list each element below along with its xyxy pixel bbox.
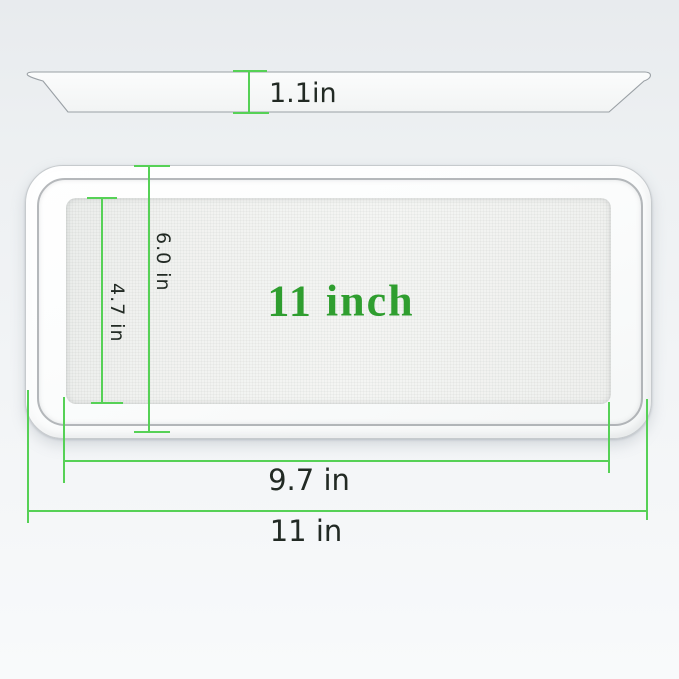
dim-outer-height-cap-bottom bbox=[134, 431, 170, 433]
dim-outer-width-ext-right bbox=[646, 399, 648, 520]
dim-depth-label: 1.1in bbox=[269, 80, 337, 107]
dim-inner-width-label: 9.7 in bbox=[268, 466, 350, 495]
dim-outer-height-label: 6.0 in bbox=[153, 232, 172, 292]
dim-depth-cap-top bbox=[233, 70, 267, 72]
tray-side-outline bbox=[27, 72, 650, 112]
dim-inner-height-cap-top bbox=[87, 197, 117, 199]
product-dimension-image: 1.1in 11 inch 6.0 in 4.7 in 9.7 in 11 in bbox=[0, 0, 679, 679]
dim-outer-height-line bbox=[148, 166, 150, 432]
dim-outer-width-ext-left bbox=[27, 390, 29, 523]
dim-inner-height-cap-bottom bbox=[91, 402, 123, 404]
tray-side-view bbox=[20, 60, 660, 120]
tray-size-label: 11 inch bbox=[267, 276, 414, 327]
dim-inner-height-line bbox=[101, 198, 103, 403]
dim-inner-height-label: 4.7 in bbox=[107, 283, 126, 343]
dim-outer-height-cap-top bbox=[134, 165, 170, 167]
dim-depth-line bbox=[248, 71, 250, 114]
dim-inner-width-ext-left bbox=[63, 397, 65, 483]
dim-outer-width-label: 11 in bbox=[270, 517, 343, 546]
dim-inner-width-ext-right bbox=[608, 402, 610, 473]
dim-outer-width-line bbox=[27, 510, 648, 512]
dim-inner-width-line bbox=[63, 460, 610, 462]
dim-depth-cap-bottom bbox=[233, 112, 269, 114]
